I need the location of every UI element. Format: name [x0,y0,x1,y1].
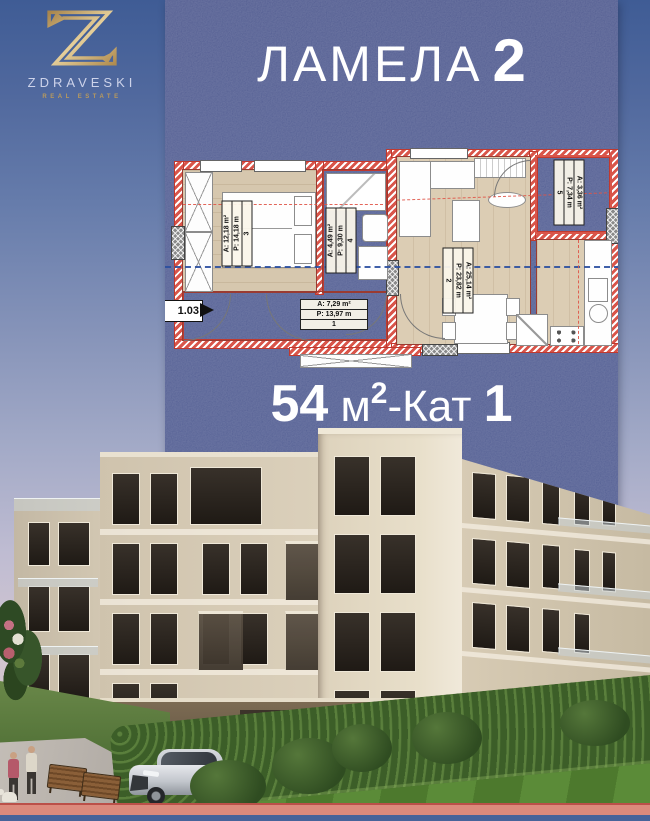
room-number: 5 [555,161,564,225]
kitchen-sink [588,278,608,302]
axis-line-red [183,204,383,205]
balcony-railing [300,354,412,368]
title-text: ЛАМЕЛА [257,36,482,92]
area-size-line: 54 м2-Кат 1 [165,374,618,434]
room-label-bathroom: A: 4,49 m² P: 9,30 m 4 [326,208,357,274]
area-unit: м [341,382,371,431]
room-number: 3 [243,202,252,266]
wardrobe-2 [185,232,213,292]
room-perimeter: P: 9,30 m [337,209,347,273]
room-number: 2 [444,249,453,313]
room-label-living: A: 25,14 m² P: 23,82 m 2 [443,248,474,314]
wall-bottom-left-section [175,340,393,348]
room-perimeter: P: 13,97 m [301,310,367,320]
info-panel: ЛАМЕЛА2 [165,0,618,537]
wall-living-terrace [530,152,537,240]
page-title: ЛАМЕЛА2 [165,26,618,95]
pillar [171,226,185,260]
pillow-2 [294,234,312,264]
sink [362,214,388,242]
room-area: A: 3,36 m² [574,161,584,225]
bedroom-window-2 [254,160,306,172]
floor-number: 1 [484,375,513,433]
floorplan: A: 7,29 m² P: 13,97 m 1 A: 25,14 m² P: 2… [170,148,618,368]
room-area: A: 7,29 m² [301,300,367,310]
z-glyph-icon [45,8,119,68]
room-perimeter: P: 7,34 m [564,161,574,225]
neighbor-building [596,538,650,712]
brand-tagline: REAL ESTATE [12,94,152,100]
entry-label: 1.03 [165,300,203,322]
axis-line-red-v [578,240,579,344]
pillar [606,208,618,244]
wall-bedroom-bath [316,162,323,294]
pillar [422,344,458,356]
area-unit-sup: 2 [371,377,388,410]
shower [326,173,386,211]
room-perimeter: P: 14,18 m [233,202,243,266]
title-number: 2 [492,27,525,94]
room-number: 4 [347,209,356,273]
floor-label: Кат [402,382,471,431]
room-area: A: 25,14 m² [463,249,473,313]
room-label-bedroom: A: 12,18 m² P: 14,18 m 3 [222,201,253,267]
zdraveski-logo: ZDRAVESKI REAL ESTATE [12,8,152,100]
area-value: 54 [270,375,328,433]
room-perimeter: P: 23,82 m [453,249,463,313]
room-area: A: 12,18 m² [223,202,233,266]
floor-separator: - [387,382,402,431]
bedroom-window [200,160,242,172]
living-window [410,148,468,159]
washing-machine [358,246,388,280]
room-number: 1 [301,320,367,329]
neighbor-cornice [596,554,650,566]
bottom-bar [0,803,650,815]
room-area: A: 4,49 m² [327,209,337,273]
wall-center [387,150,397,348]
wardrobe [185,172,213,232]
entry-arrow-icon [200,303,214,317]
brand-name: ZDRAVESKI [12,75,152,90]
kitchen-sink-bowl [589,304,608,323]
room-label-terrace: A: 3,36 m² P: 7,34 m 5 [554,160,585,226]
room-label-hall: A: 7,29 m² P: 13,97 m 1 [300,299,368,330]
neighbor-base [596,686,650,712]
coffee-table [452,200,480,242]
fridge [516,314,548,346]
pillow [294,196,312,226]
